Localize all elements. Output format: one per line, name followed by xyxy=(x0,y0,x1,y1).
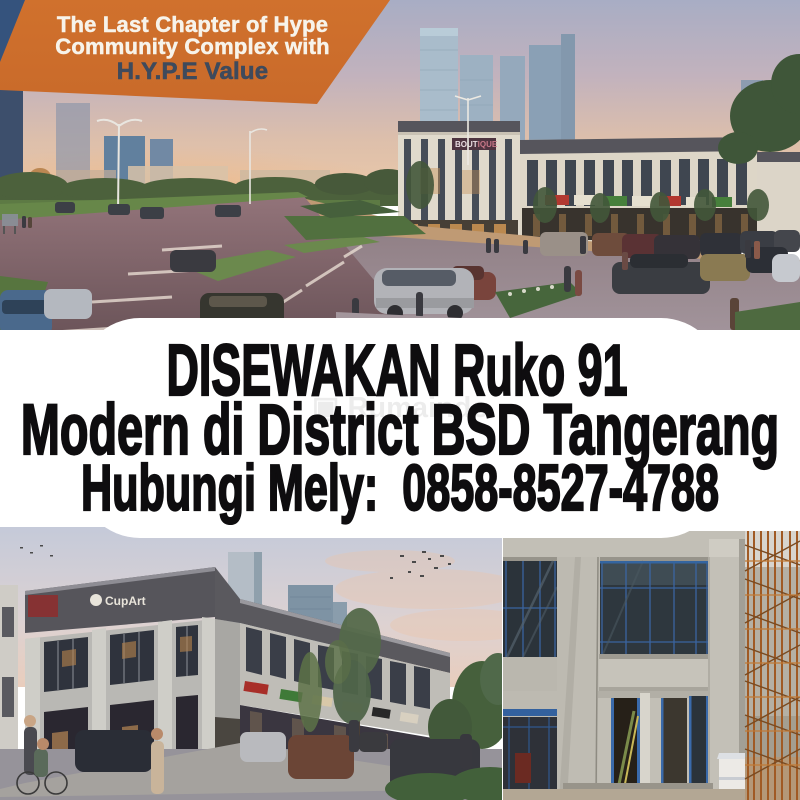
svg-text:BOUTIQUE: BOUTIQUE xyxy=(455,140,498,149)
svg-text:CupArt: CupArt xyxy=(105,594,146,608)
